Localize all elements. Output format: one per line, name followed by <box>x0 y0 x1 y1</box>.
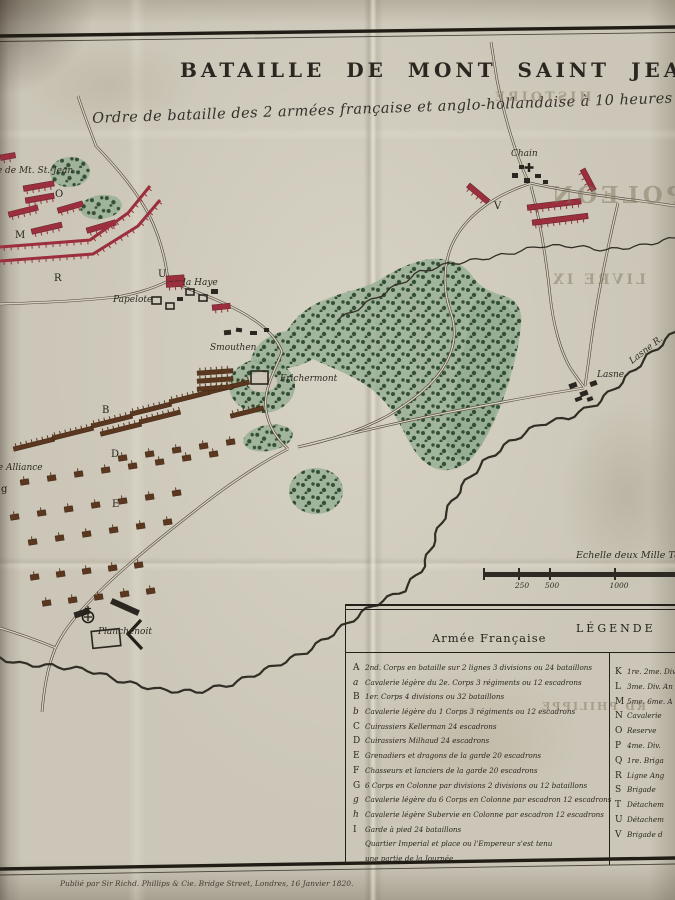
legend-row-text: Cuirassiers Milhaud 24 escadrons <box>365 736 489 745</box>
legend-row-text: Cavalerie légère du 6 Corps en Colonne p… <box>365 795 611 804</box>
legend-row: IGarde à pied 24 bataillons <box>353 820 609 835</box>
building <box>543 180 548 184</box>
place-label: Frichermont <box>279 374 338 384</box>
building <box>236 328 242 333</box>
legend-row: K1re. 2me. Div <box>615 662 675 677</box>
french-squadron <box>136 520 146 530</box>
legend-row: SBrigade <box>615 780 675 795</box>
building <box>224 330 231 336</box>
french-squadron <box>55 532 65 542</box>
building <box>524 178 530 183</box>
building <box>519 165 524 169</box>
french-squadron <box>28 536 38 546</box>
allied-unit <box>25 193 55 207</box>
legend-row-text: 1er. Corps 4 divisions ou 32 bataillons <box>365 692 504 701</box>
french-squadron <box>172 444 182 454</box>
allied-unit <box>166 281 185 291</box>
top-neatline <box>0 27 675 36</box>
building <box>575 396 583 402</box>
legend-row: OReserve <box>615 721 675 736</box>
legend-header-rule <box>346 652 675 653</box>
building <box>250 331 257 335</box>
french-unit <box>51 423 94 440</box>
building <box>110 598 140 616</box>
road <box>585 203 618 386</box>
place-label: Smouthen <box>210 343 257 353</box>
scale-band <box>483 572 675 577</box>
building <box>589 380 597 387</box>
unit-letter: V <box>493 201 502 212</box>
building <box>166 303 174 309</box>
place-label: lle Alliance <box>0 463 43 473</box>
french-squadron <box>145 448 155 458</box>
building <box>264 328 269 332</box>
forest-trees <box>289 468 343 514</box>
french-squadron <box>128 460 138 470</box>
french-squadron <box>101 464 111 474</box>
building <box>177 297 183 301</box>
french-squadron <box>120 588 130 598</box>
unit-letter: R <box>54 273 62 284</box>
legend-row-text: 6 Corps en Colonne par divisions 2 divis… <box>365 781 587 790</box>
french-squadron <box>209 448 219 458</box>
publisher-imprint: Publié par Sir Richd. Phillips & Cie. Br… <box>60 879 350 888</box>
legend-row: G6 Corps en Colonne par divisions 2 divi… <box>353 776 609 791</box>
allied-unit <box>8 205 39 221</box>
building <box>535 174 541 178</box>
place-label: rme de Mt. St. Jean <box>0 166 73 176</box>
legend-row-text: Chasseurs et lanciers de la garde 20 esc… <box>365 766 538 775</box>
road <box>42 449 288 712</box>
legend-row-text: Cavalerie <box>627 711 662 720</box>
legend-row-text: Détachem <box>627 815 664 824</box>
unit-letter: M <box>15 230 25 241</box>
scale-tick <box>549 568 551 580</box>
french-squadron <box>56 568 66 578</box>
legend-row: UDétachem <box>615 810 675 825</box>
legend-row: bCavalerie légère du 1 Corps 3 régiments… <box>353 702 609 717</box>
forest-trees <box>79 192 124 222</box>
french-squadron <box>226 436 236 446</box>
french-squadron <box>42 597 52 607</box>
french-squadron <box>82 565 92 575</box>
legend-row: gCavalerie légère du 6 Corps en Colonne … <box>353 790 609 805</box>
french-squadron <box>182 452 192 462</box>
place-label: Lasne <box>596 370 624 380</box>
place-label: Lasne R. <box>627 334 665 367</box>
french-squadron <box>82 528 92 538</box>
legend-row-key: V <box>615 828 627 843</box>
allied-unit <box>23 181 55 195</box>
legend-column-divider <box>609 652 610 865</box>
place-label: la Haye <box>183 278 218 288</box>
legend-row-text: Brigade d <box>627 830 663 839</box>
legend-row-text: Quartier Imperial et place ou l'Empereur… <box>365 839 552 848</box>
french-squadron <box>163 516 173 526</box>
units-allied-layer <box>0 152 596 313</box>
legend-row: TDétachem <box>615 795 675 810</box>
french-unit <box>12 434 55 451</box>
unit-letter: g <box>1 484 8 495</box>
legend-row-text: Cavalerie légère Subervie en Colonne par… <box>365 810 604 819</box>
legend-row: Quartier Imperial et place ou l'Empereur… <box>353 834 609 849</box>
scale-label: Echelle deux Mille Toi <box>576 550 675 561</box>
legend-row-text: Reserve <box>627 726 656 735</box>
unit-letter: O <box>55 189 63 200</box>
legend-row: une partie de la Journée <box>353 849 609 864</box>
place-label: Chain <box>511 149 538 159</box>
scale-number: 500 <box>545 581 559 590</box>
allied-unit <box>0 152 16 163</box>
legend-row: EGrenadiers et dragons de la garde 20 es… <box>353 746 609 761</box>
unit-letter: U <box>158 269 166 280</box>
legend-army-header: Armée Française <box>432 631 546 645</box>
building <box>586 396 593 402</box>
french-squadron <box>145 491 155 501</box>
french-squadron <box>64 503 74 513</box>
legend-row-text: 1re. 2me. Div <box>627 667 675 676</box>
legend-row: DCuirassiers Milhaud 24 escadrons <box>353 731 609 746</box>
french-squadron <box>108 562 118 572</box>
scale-tick <box>518 568 520 580</box>
allied-unit <box>464 183 490 206</box>
place-label: Papelote <box>112 295 152 305</box>
allied-unit <box>577 168 596 193</box>
legend-row-text: 2nd. Corps en bataille sur 2 lignes 3 di… <box>365 663 592 672</box>
legend-row-text: une partie de la Journée <box>365 854 453 863</box>
legend-row: CCuirassiers Kellerman 24 escadrons <box>353 717 609 732</box>
scale-tick <box>614 568 616 580</box>
legend-row: aCavalerie légère du 2e. Corps 3 régimen… <box>353 673 609 688</box>
place-label: Planchenoit <box>97 627 152 637</box>
french-squadron <box>109 524 119 534</box>
unit-letter: D <box>111 449 119 460</box>
legend-title: LÉGENDE <box>576 622 656 635</box>
map-title: BATAILLE DE MONT SAINT JEAN. <box>180 58 650 82</box>
legend-row: M5me. 6me. A <box>615 692 675 707</box>
legend-row: RLigne Ang <box>615 766 675 781</box>
allied-unit <box>212 303 231 314</box>
french-squadron <box>199 440 209 450</box>
legend-row: NCavalerie <box>615 706 675 721</box>
french-squadron <box>10 511 20 521</box>
legend-row-text: Grenadiers et dragons de la garde 20 esc… <box>365 751 541 760</box>
french-squadron <box>30 571 40 581</box>
legend-row-text: Cavalerie légère du 1 Corps 3 régiments … <box>365 707 575 716</box>
scale-bar: Echelle deux Mille Toi 2505001000 <box>483 550 675 592</box>
legend-row-text: Cavalerie légère du 2e. Corps 3 régiment… <box>365 678 582 687</box>
legend-row: B1er. Corps 4 divisions ou 32 bataillons <box>353 687 609 702</box>
legend-row: P4me. Div. <box>615 736 675 751</box>
unit-letter: B <box>102 405 109 416</box>
building <box>512 173 518 178</box>
scale-number: 250 <box>515 581 529 590</box>
french-squadron <box>155 456 165 466</box>
french-squadron <box>37 507 47 517</box>
legend-row: hCavalerie légère Subervie en Colonne pa… <box>353 805 609 820</box>
building <box>152 297 161 304</box>
legend-row-text: 4me. Div. <box>627 741 661 750</box>
road <box>42 449 288 712</box>
legend-row-text: 1re. Briga <box>627 756 664 765</box>
legend-row: Q1re. Briga <box>615 751 675 766</box>
legend-box: LÉGENDE Armée Française A2nd. Corps en b… <box>345 604 675 865</box>
crossroads-cross-icon <box>525 163 534 172</box>
legend-row: A2nd. Corps en bataille sur 2 lignes 3 d… <box>353 658 609 673</box>
french-squadron <box>20 476 30 486</box>
building <box>211 289 218 294</box>
legend-row-text: 3me. Div. An <box>627 682 673 691</box>
allied-unit <box>31 222 63 237</box>
french-squadron <box>74 468 84 478</box>
legend-row-text: Détachem <box>627 800 664 809</box>
french-squadron <box>146 585 156 595</box>
allied-front-line <box>0 186 152 251</box>
legend-row-text: Brigade <box>627 785 656 794</box>
legend-row-text: 5me. 6me. A <box>627 697 673 706</box>
legend-row: FChasseurs et lanciers de la garde 20 es… <box>353 761 609 776</box>
french-squadron <box>68 594 78 604</box>
page: rme de Mt. St. Jeanla HayePapeloteSmouth… <box>0 0 675 900</box>
legend-row: L3me. Div. An <box>615 677 675 692</box>
legend-row-text: Garde à pied 24 bataillons <box>365 825 461 834</box>
legend-allied-column: K1re. 2me. Div L3me. Div. An M5me. 6me. … <box>615 662 675 840</box>
french-unit <box>197 365 233 375</box>
legend-row-text: Cuirassiers Kellerman 24 escadrons <box>365 722 497 731</box>
scale-number: 1000 <box>609 581 628 590</box>
legend-row: VBrigade d <box>615 825 675 840</box>
french-squadron <box>47 472 57 482</box>
french-squadron <box>172 487 182 497</box>
french-squadron <box>91 499 101 509</box>
unit-letter: E <box>112 499 119 510</box>
scale-tick <box>483 568 485 580</box>
legend-row-text: Ligne Ang <box>627 771 664 780</box>
legend-french-column: A2nd. Corps en bataille sur 2 lignes 3 d… <box>353 658 609 864</box>
